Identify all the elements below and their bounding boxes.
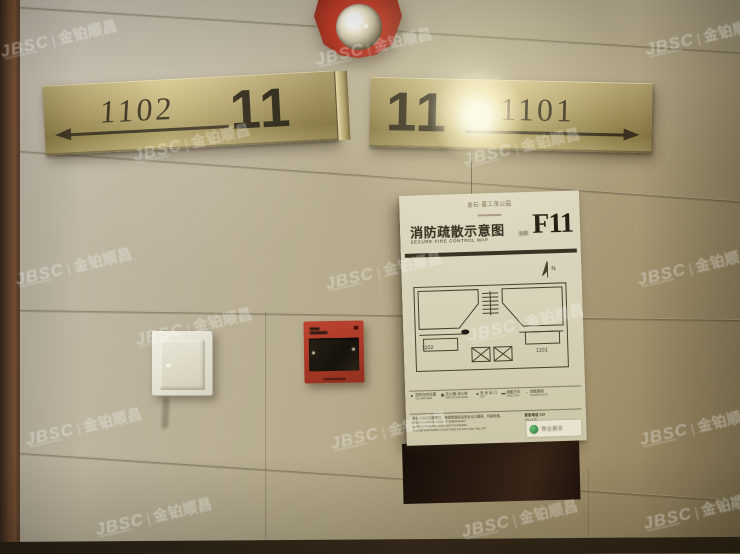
legend-exit: ◄ 安 全 出 口EXIT xyxy=(475,391,497,399)
property-logo-text: 物业服务 xyxy=(541,424,563,432)
hallway-photo: 1102 11 11 1101 金石·嘉工茂公园 消防疏散示意图 SECURE … xyxy=(0,0,740,554)
watermark: JBSC|金铂顺昌 xyxy=(637,403,740,450)
watermark: JBSC|金铂顺昌 xyxy=(23,403,144,450)
evacuation-direction-icon: ▬ xyxy=(501,391,505,396)
call-point-glass xyxy=(309,338,360,372)
switch-indicator xyxy=(166,364,171,367)
watermark: JBSC|金铂顺昌 xyxy=(635,243,740,290)
strobe-dome xyxy=(336,4,382,50)
floor-plan: N 1102 1101 xyxy=(411,257,575,388)
safety-exit-icon: ◄ xyxy=(475,392,479,397)
floor-number: 11 xyxy=(228,80,293,138)
tile-joint xyxy=(20,150,740,203)
fire-alarm-strobe xyxy=(314,0,402,58)
watermark: JBSC|金铂顺昌 xyxy=(93,493,214,540)
screw-glint xyxy=(352,348,355,351)
tile-joint-vertical xyxy=(265,312,267,554)
screw-glint xyxy=(312,351,315,354)
direction-sign-1101: 11 1101 xyxy=(369,77,653,153)
north-label: N xyxy=(551,266,556,272)
floor-shadow-strip xyxy=(0,537,740,554)
tile-joint xyxy=(20,452,740,503)
legend-extinguisher: ▣ 灭火器·消火栓FIRE EXTINGUISHER xyxy=(441,392,471,400)
dark-wall-panel xyxy=(402,439,581,504)
strobe-glare xyxy=(348,14,355,19)
sign-side-bevel xyxy=(334,71,351,141)
tile-joint xyxy=(20,309,740,322)
strobe-glare xyxy=(364,24,368,28)
legend-direction: ▬ 疏散方向DIRECTION xyxy=(501,390,520,398)
arrow-head xyxy=(55,128,72,141)
arrow-right-icon xyxy=(466,130,626,137)
fire-extinguisher-icon: ▣ xyxy=(441,393,445,398)
arrow-head xyxy=(623,129,639,141)
floor-number: 11 xyxy=(385,84,448,140)
unit-number: 1101 xyxy=(500,91,576,130)
building-name-subline xyxy=(478,214,502,217)
escape-route-icon: ← xyxy=(525,390,529,395)
plan-unit-left: 1102 xyxy=(422,345,434,351)
light-switch xyxy=(151,330,213,396)
fire-evacuation-map-sign: 金石·嘉工茂公园 消防疏散示意图 SECURE FIRE CONTROL MAP… xyxy=(399,190,587,446)
wall-stain xyxy=(161,397,170,429)
switch-rocker xyxy=(160,340,205,390)
direction-sign-1102: 1102 11 xyxy=(42,70,337,155)
fire-alarm-call-point xyxy=(303,320,364,383)
unit-number: 1102 xyxy=(99,90,176,131)
wall-corner-strip xyxy=(0,0,20,554)
green-logo-icon xyxy=(529,424,538,433)
position-marker-icon: ► xyxy=(410,394,414,399)
call-point-logo xyxy=(310,331,328,334)
property-management-logo: 物业服务 xyxy=(526,419,581,437)
legend-position: ► 您所在的位置YOU ARE HERE xyxy=(410,393,436,401)
call-point-logo xyxy=(310,327,320,330)
floor-label-prefix: 当前 xyxy=(518,230,528,237)
hanging-wire xyxy=(471,152,472,199)
floor-code: F11 xyxy=(532,208,574,241)
call-point-label xyxy=(323,378,345,380)
watermark: JBSC|金铂顺昌 xyxy=(13,243,134,290)
plan-unit-right: 1101 xyxy=(536,347,548,353)
legend-route: ← 疏散路线ESCAPE ROUTE xyxy=(525,389,550,397)
alarm-led xyxy=(354,326,359,330)
